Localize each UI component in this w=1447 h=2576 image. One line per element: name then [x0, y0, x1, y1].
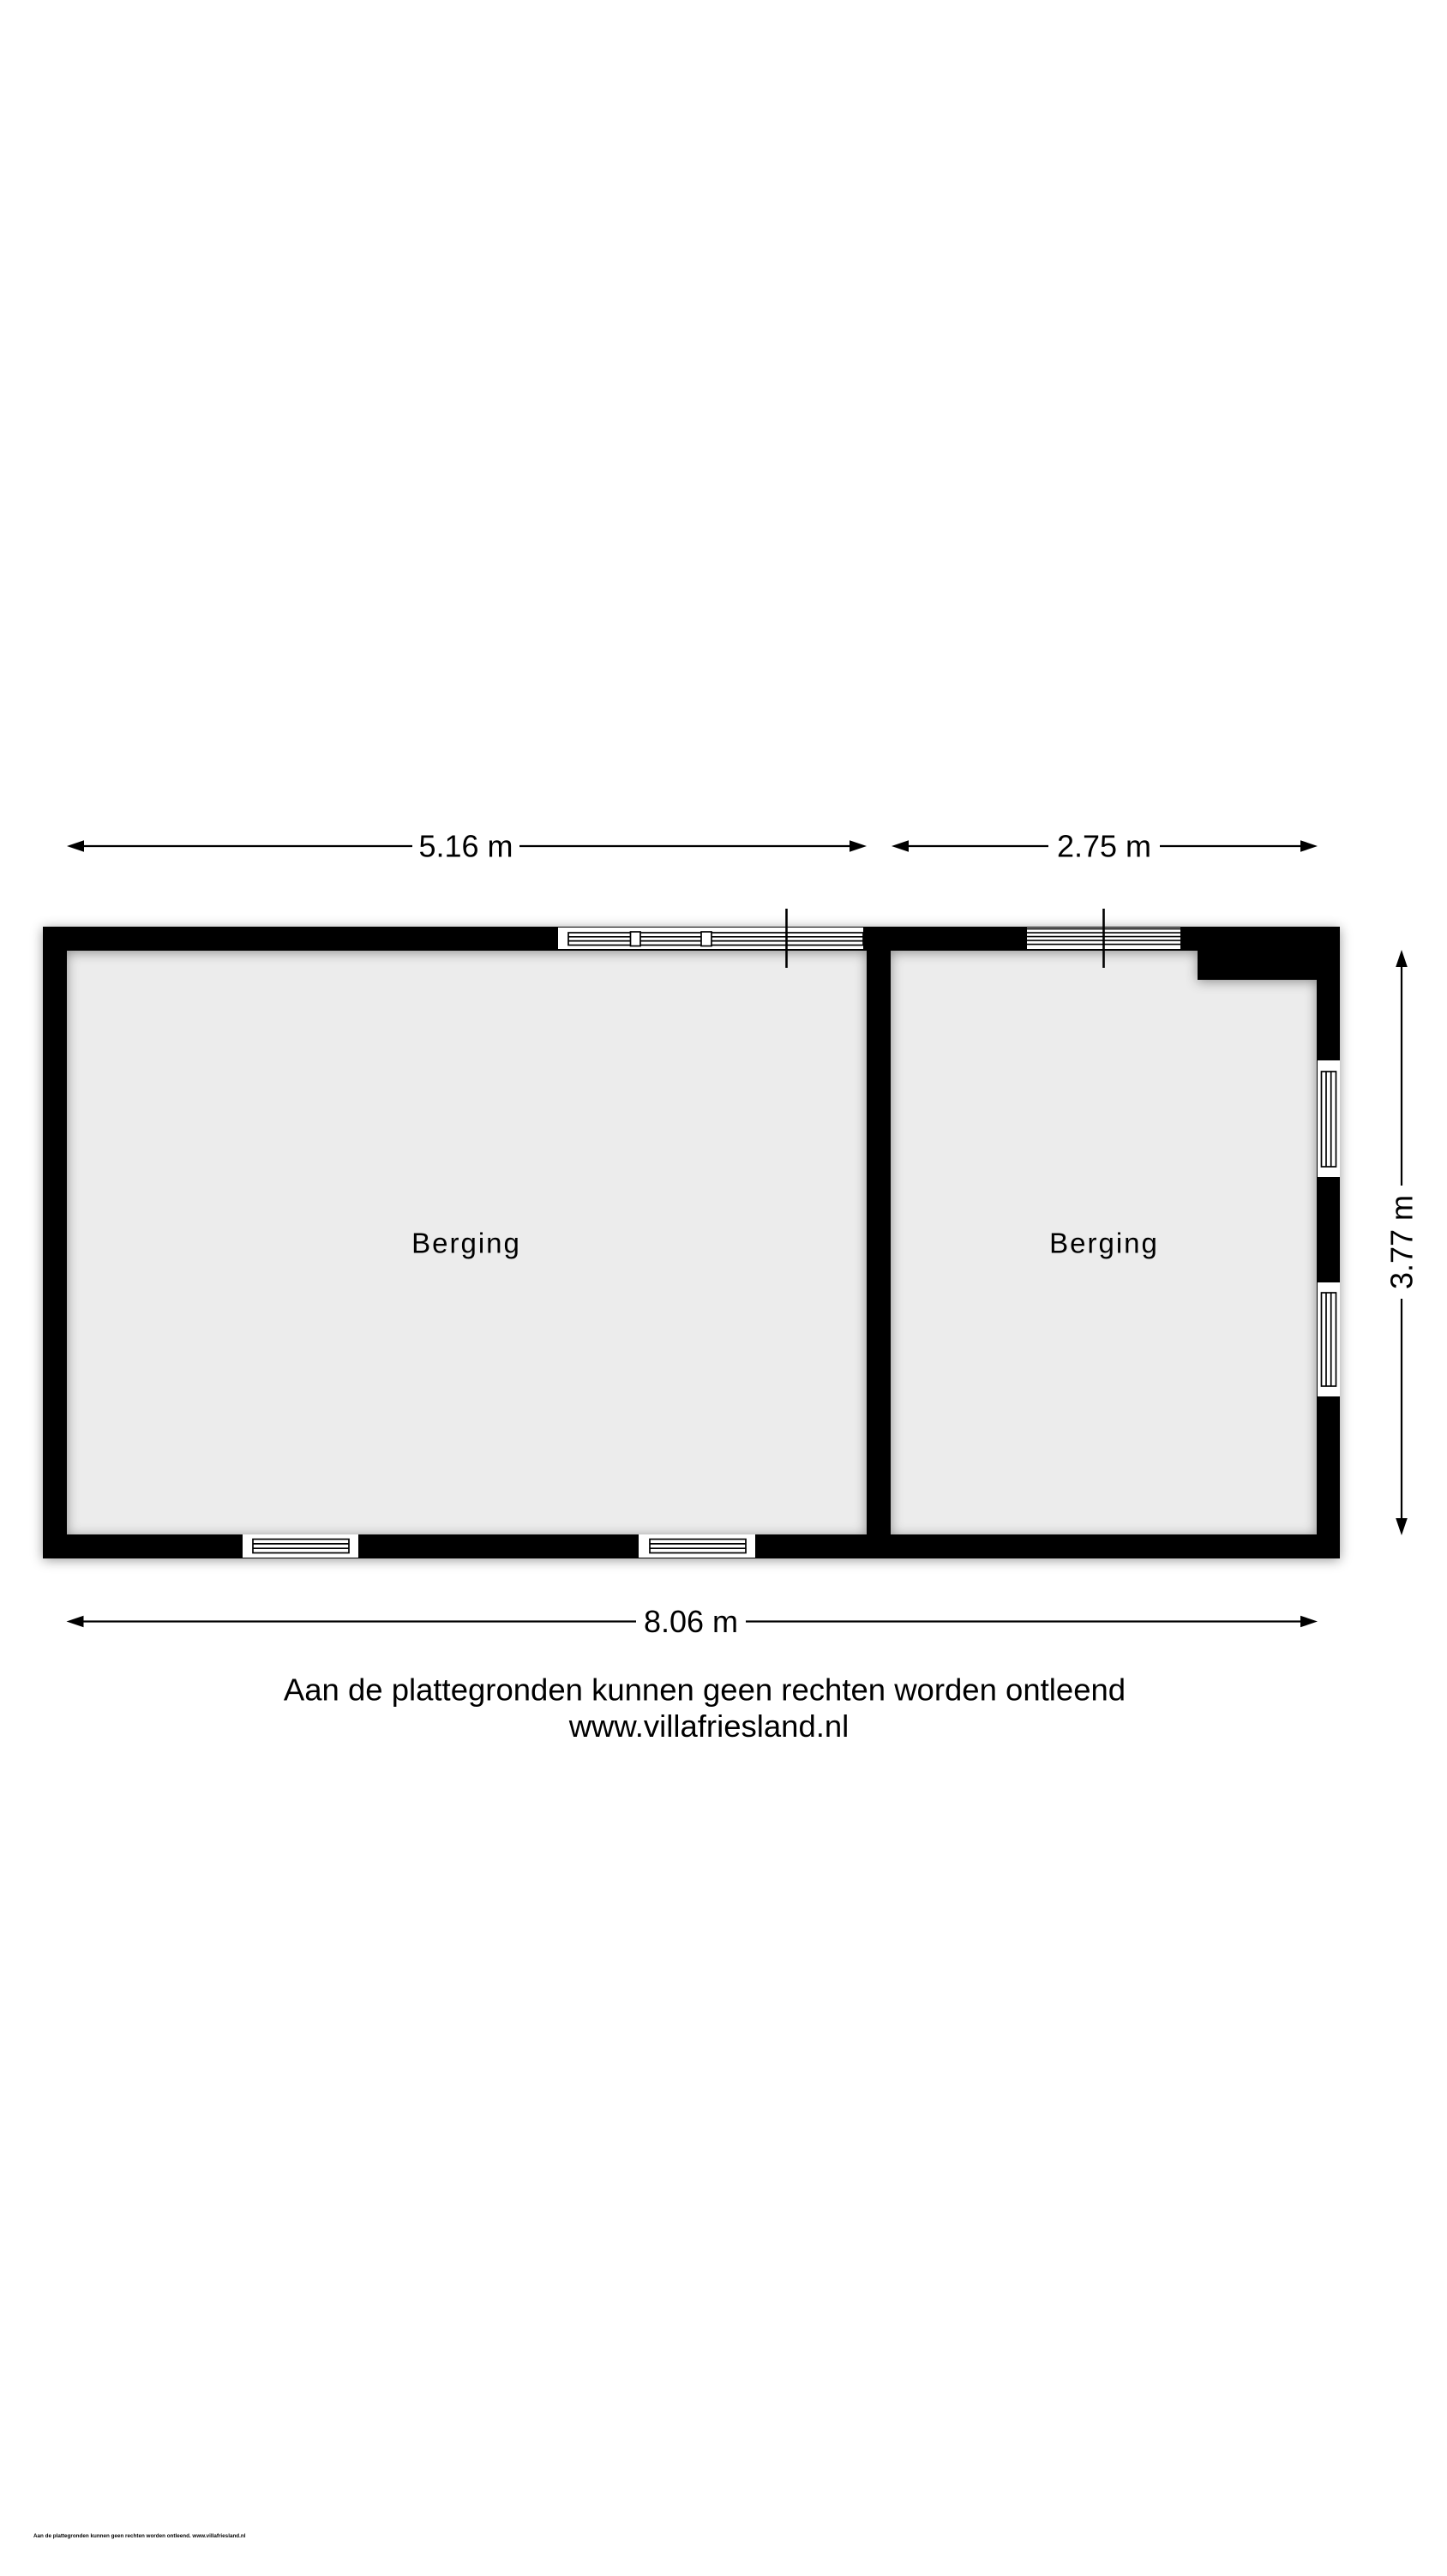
svg-text:3.77 m: 3.77 m [1384, 1195, 1420, 1289]
svg-text:www.villafriesland.nl: www.villafriesland.nl [568, 1708, 850, 1744]
svg-text:Berging: Berging [1049, 1228, 1159, 1259]
svg-text:Aan de plattegronden kunnen ge: Aan de plattegronden kunnen geen rechten… [33, 2533, 246, 2539]
svg-text:Berging: Berging [411, 1228, 521, 1259]
svg-text:2.75 m: 2.75 m [1057, 829, 1151, 864]
svg-text:8.06 m: 8.06 m [644, 1604, 738, 1639]
svg-text:5.16 m: 5.16 m [418, 829, 513, 864]
svg-text:Aan de plattegronden kunnen ge: Aan de plattegronden kunnen geen rechten… [284, 1672, 1126, 1708]
